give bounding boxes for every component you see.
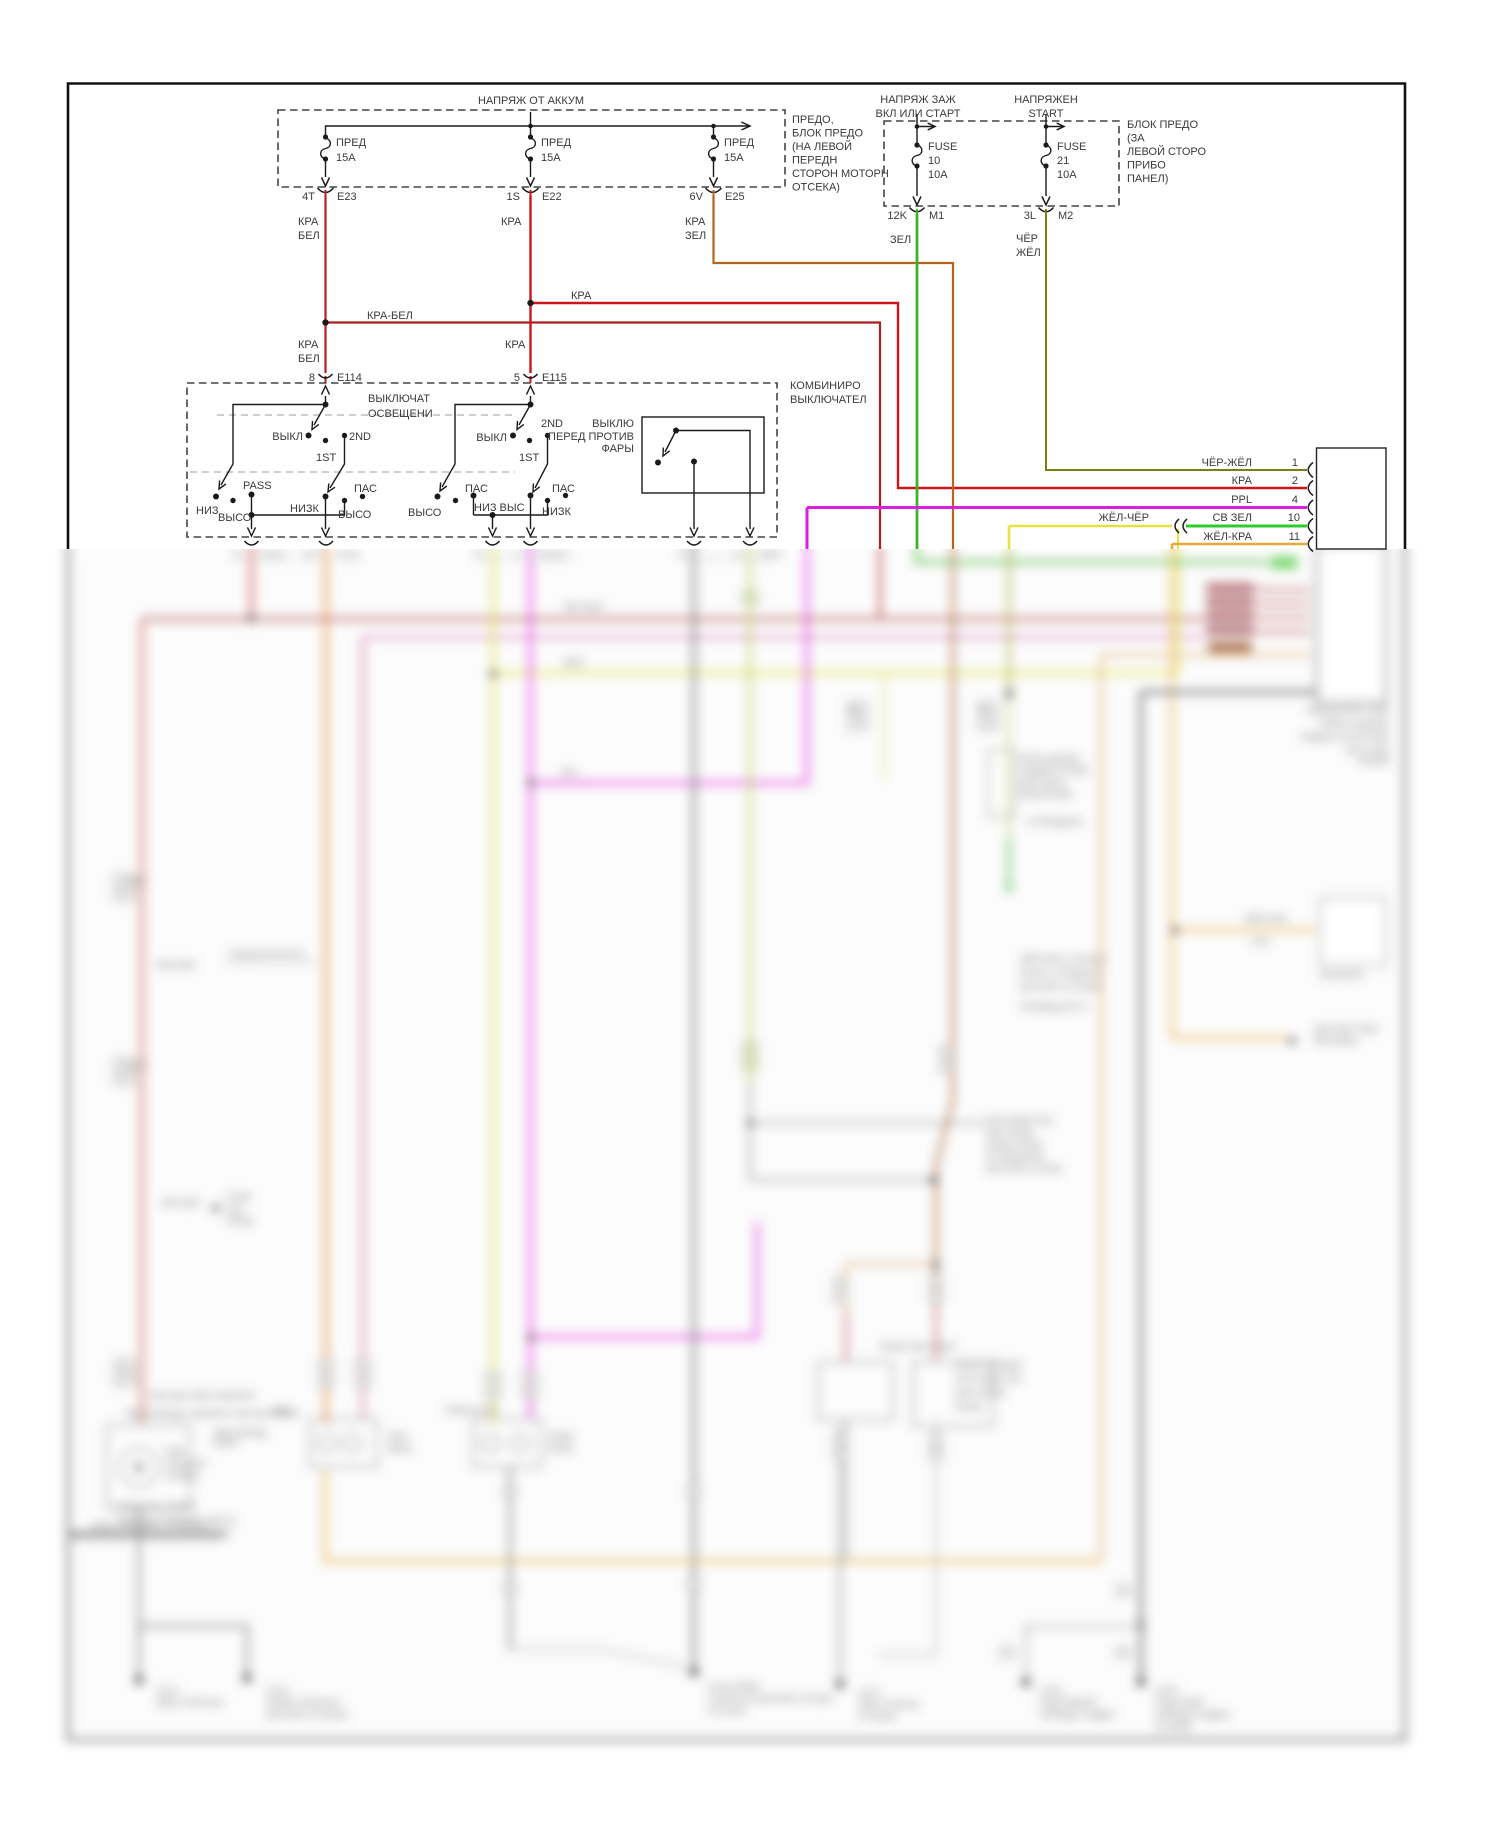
svg-text:ВЫКЛ: ВЫКЛ — [476, 432, 507, 444]
svg-text:ВЫКЛЮЧАТ: ВЫКЛЮЧАТ — [368, 393, 430, 405]
svg-text:НИЗ ВЫС: НИЗ ВЫС — [474, 502, 525, 514]
svg-text:КРА: КРА — [298, 339, 319, 351]
svg-text:ОТСЕКА): ОТСЕКА) — [792, 182, 840, 194]
svg-text:ПЕРЕД ПРОТИВ: ПЕРЕД ПРОТИВ — [548, 431, 634, 443]
svg-text:КРА: КРА — [501, 216, 522, 228]
svg-text:10: 10 — [1288, 512, 1300, 524]
svg-text:КРА: КРА — [571, 290, 592, 302]
svg-text:ВЫКЛЮ: ВЫКЛЮ — [592, 418, 634, 430]
svg-text:6V: 6V — [690, 191, 704, 203]
svg-text:8: 8 — [309, 372, 315, 384]
svg-text:БЛОК ПРЕДО: БЛОК ПРЕДО — [792, 128, 863, 140]
svg-text:E25: E25 — [725, 191, 745, 203]
svg-text:M2: M2 — [1058, 210, 1073, 222]
svg-text:ВКЛ ИЛИ СТАРТ: ВКЛ ИЛИ СТАРТ — [876, 108, 961, 120]
svg-text:ЧЁР: ЧЁР — [1016, 233, 1038, 245]
svg-text:12K: 12K — [887, 210, 907, 222]
svg-text:2ND: 2ND — [349, 431, 371, 443]
svg-text:НИЗК: НИЗК — [290, 503, 319, 515]
svg-text:ПАС: ПАС — [354, 483, 377, 495]
svg-text:СТОРОН МОТОРН: СТОРОН МОТОРН — [792, 168, 889, 180]
svg-text:ПРИБО: ПРИБО — [1127, 160, 1166, 172]
svg-text:ВЫКЛЮЧАТЕЛ: ВЫКЛЮЧАТЕЛ — [790, 394, 867, 406]
svg-text:ПЕРЕДН: ПЕРЕДН — [792, 155, 837, 167]
svg-text:ВЫКЛ: ВЫКЛ — [272, 431, 303, 443]
svg-text:БЛОК ПРЕДО: БЛОК ПРЕДО — [1127, 119, 1198, 131]
svg-text:3L: 3L — [1024, 210, 1036, 222]
svg-text:КОМБИНИРО: КОМБИНИРО — [790, 380, 861, 392]
svg-text:ЗЕЛ: ЗЕЛ — [685, 230, 706, 242]
svg-text:11: 11 — [1289, 531, 1300, 543]
svg-text:2ND: 2ND — [541, 418, 563, 430]
svg-text:10: 10 — [928, 155, 940, 167]
svg-text:БЕЛ: БЕЛ — [298, 230, 320, 242]
svg-text:E114: E114 — [337, 372, 362, 384]
svg-text:FUSE: FUSE — [1057, 141, 1086, 153]
svg-text:4T: 4T — [302, 191, 315, 203]
svg-text:5: 5 — [514, 372, 520, 384]
svg-text:ЖЁЛ-КРА: ЖЁЛ-КРА — [1203, 531, 1252, 543]
svg-text:ПРЕД: ПРЕД — [336, 137, 367, 149]
svg-text:КРА: КРА — [1232, 475, 1253, 487]
svg-text:ПАС: ПАС — [552, 483, 575, 495]
svg-text:ЖЁЛ: ЖЁЛ — [1016, 247, 1041, 259]
svg-text:КРА: КРА — [685, 216, 706, 228]
svg-text:ПРЕДО,: ПРЕДО, — [792, 114, 834, 126]
svg-text:ПАНЕЛ): ПАНЕЛ) — [1127, 173, 1168, 185]
svg-text:10А: 10А — [1057, 169, 1077, 181]
svg-text:НИЗК: НИЗК — [542, 506, 571, 518]
svg-text:ВЫСО: ВЫСО — [408, 507, 442, 519]
svg-text:E22: E22 — [542, 191, 562, 203]
svg-text:PASS: PASS — [243, 480, 272, 492]
svg-text:PPL: PPL — [1231, 494, 1252, 506]
svg-text:15А: 15А — [336, 152, 356, 164]
svg-text:НИЗ: НИЗ — [196, 505, 219, 517]
svg-text:КРА-БЕЛ: КРА-БЕЛ — [367, 310, 413, 322]
svg-text:1: 1 — [1292, 457, 1298, 469]
svg-text:M1: M1 — [929, 210, 944, 222]
svg-text:(НА ЛЕВОЙ: (НА ЛЕВОЙ — [792, 140, 852, 153]
svg-text:НАПРЯЖ ЗАЖ: НАПРЯЖ ЗАЖ — [880, 94, 955, 106]
svg-text:(ЗА: (ЗА — [1127, 133, 1145, 145]
svg-text:ПРЕД: ПРЕД — [541, 137, 572, 149]
svg-text:НАПРЯЖ ОТ АККУМ: НАПРЯЖ ОТ АККУМ — [478, 95, 584, 107]
svg-text:1S: 1S — [507, 191, 520, 203]
svg-text:15А: 15А — [541, 152, 561, 164]
svg-text:21: 21 — [1057, 155, 1069, 167]
svg-text:ЧЁР-ЖЁЛ: ЧЁР-ЖЁЛ — [1202, 457, 1252, 469]
svg-text:СВ ЗЕЛ: СВ ЗЕЛ — [1212, 512, 1252, 524]
svg-text:ЖЁЛ-ЧЁР: ЖЁЛ-ЧЁР — [1099, 512, 1149, 524]
svg-text:ФАРЫ: ФАРЫ — [601, 443, 634, 455]
svg-text:ПРЕД: ПРЕД — [724, 137, 755, 149]
svg-text:КРА: КРА — [505, 339, 526, 351]
svg-text:1ST: 1ST — [316, 452, 336, 464]
svg-text:ОСВЕЩЕНИ: ОСВЕЩЕНИ — [368, 408, 433, 420]
svg-text:ВЫСО: ВЫСО — [338, 509, 372, 521]
svg-text:FUSE: FUSE — [928, 141, 957, 153]
svg-text:ВЫСО: ВЫСО — [218, 512, 252, 524]
svg-text:10А: 10А — [928, 169, 948, 181]
svg-text:ПАС: ПАС — [465, 483, 488, 495]
svg-text:1ST: 1ST — [519, 452, 539, 464]
svg-text:ЗЕЛ: ЗЕЛ — [890, 234, 911, 246]
svg-text:2: 2 — [1292, 475, 1298, 487]
svg-text:4: 4 — [1292, 494, 1298, 506]
svg-text:15А: 15А — [724, 152, 744, 164]
svg-text:E115: E115 — [542, 372, 567, 384]
svg-text:ЛЕВОЙ СТОРО: ЛЕВОЙ СТОРО — [1127, 145, 1207, 158]
svg-text:START: START — [1028, 108, 1063, 120]
svg-text:БЕЛ: БЕЛ — [298, 353, 320, 365]
svg-text:E23: E23 — [337, 191, 357, 203]
svg-text:КРА: КРА — [298, 216, 319, 228]
svg-text:НАПРЯЖЕН: НАПРЯЖЕН — [1014, 94, 1078, 106]
